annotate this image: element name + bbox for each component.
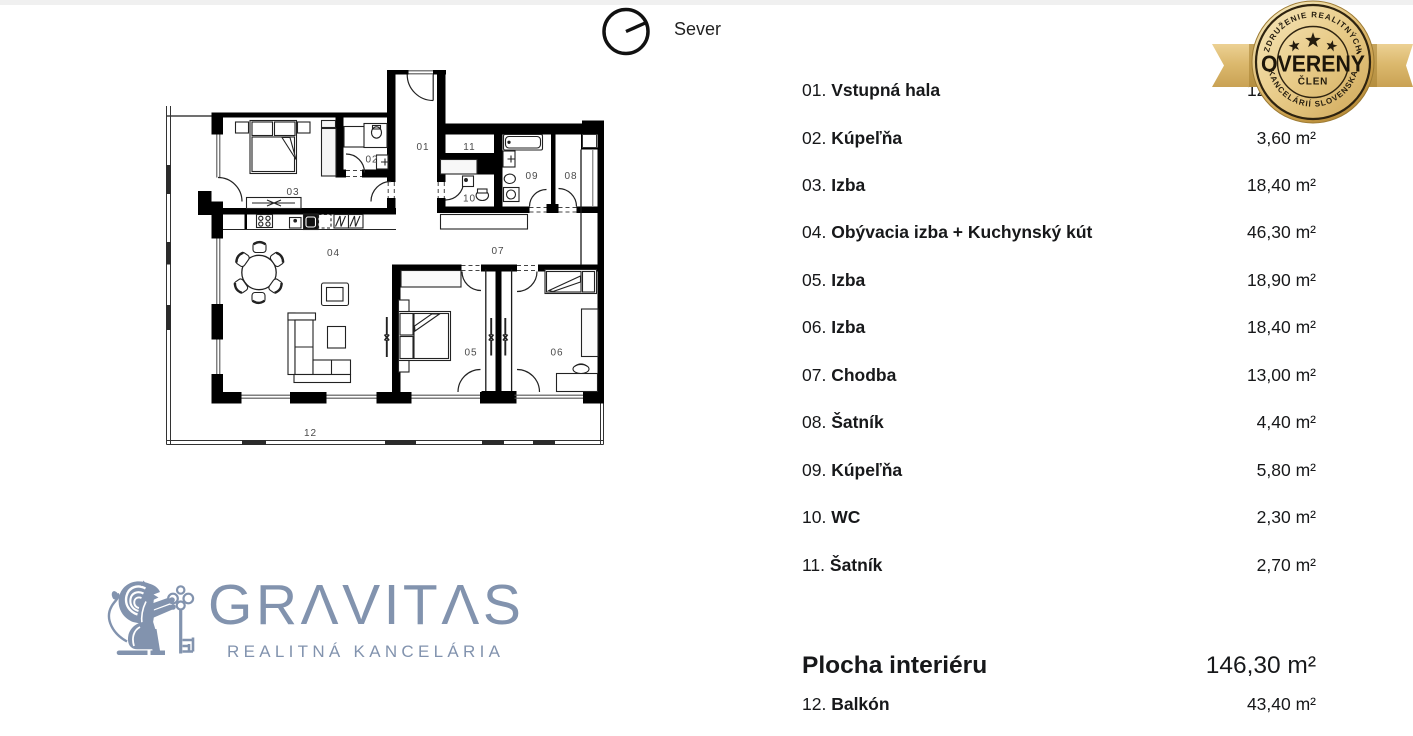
svg-text:09: 09 <box>525 171 538 182</box>
svg-text:02: 02 <box>365 155 378 166</box>
svg-text:10: 10 <box>463 194 476 205</box>
svg-text:06: 06 <box>550 348 563 359</box>
svg-text:01: 01 <box>416 142 429 153</box>
svg-text:07: 07 <box>491 246 504 257</box>
svg-text:05: 05 <box>464 348 477 359</box>
svg-text:12: 12 <box>304 428 317 439</box>
svg-text:OVERENÝ: OVERENÝ <box>1261 50 1365 77</box>
svg-text:04: 04 <box>327 248 340 259</box>
svg-text:08: 08 <box>564 171 577 182</box>
svg-text:03: 03 <box>286 187 299 198</box>
svg-text:11: 11 <box>463 142 475 153</box>
svg-text:ČLEN: ČLEN <box>1298 75 1328 88</box>
